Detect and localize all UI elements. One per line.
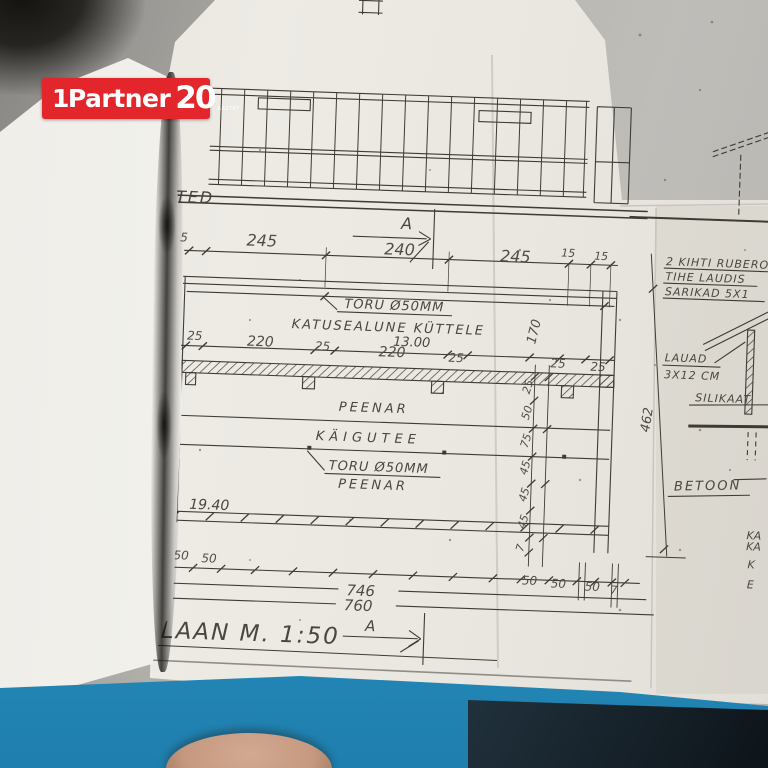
logo-brand-text: Partner — [68, 84, 170, 113]
dim: 25 — [187, 329, 203, 344]
peenar-label-1: PEENAR — [338, 400, 408, 417]
lauad-size: 3X12 CM — [664, 368, 721, 383]
shadow-blot — [158, 195, 176, 255]
kaigutee-label: KÄIGUTEE — [315, 428, 421, 448]
katusealune-label: KATUSEALUNE KÜTTELE — [291, 315, 485, 339]
dim: 50 — [201, 551, 217, 566]
chain-dim: 7 — [513, 543, 527, 553]
dim: 7 — [610, 583, 617, 596]
vert-dim: 170 — [524, 318, 545, 346]
dim: 50 — [550, 576, 566, 591]
dim: 50 — [584, 580, 600, 595]
logo-number: 20 — [175, 83, 214, 114]
lauad-label: LAUAD — [664, 351, 707, 365]
photo-of-blueprint: TED A 15 245 240 245 15 — [0, 0, 768, 768]
section-arrow-top: A — [352, 206, 435, 269]
chain-dim: 50 — [519, 404, 536, 421]
dim: 240 — [384, 239, 415, 259]
dim: 15 — [561, 247, 575, 260]
logo-suffix: AASTAT — [217, 106, 239, 112]
chain-dim: 45 — [517, 459, 534, 476]
logo-wordmark: 1Partner — [52, 84, 170, 113]
peenar-label-2: PEENAR — [338, 477, 408, 494]
shadow-blot — [156, 390, 172, 460]
dim: 25 — [550, 356, 566, 371]
edge-partial: K — [747, 558, 755, 571]
dim: 50 — [522, 573, 538, 588]
svg-text:A: A — [400, 214, 413, 233]
dim: 220 — [247, 334, 274, 351]
svg-text:A: A — [364, 617, 376, 635]
dim: 245 — [246, 231, 277, 251]
edge-partial: E — [747, 578, 754, 591]
dim: 25 — [448, 351, 464, 366]
chain-dim: 45 — [515, 513, 532, 530]
dim: 25 — [590, 360, 606, 375]
chain-dim: 75 — [518, 432, 535, 449]
total-dim: 760 — [344, 596, 373, 615]
dim: 15 — [594, 250, 608, 263]
partner-logo: 1Partner 20 AASTAT — [42, 78, 210, 119]
dim: 25 — [315, 339, 331, 354]
silikaat-label: SILIKAAT — [695, 391, 751, 406]
logo-one: 1 — [52, 84, 69, 113]
chain-dim: 45 — [516, 486, 533, 503]
betoon-label: BETOON — [674, 478, 742, 494]
edge-partial: KA — [746, 540, 761, 554]
dim: 220 — [378, 344, 405, 361]
top-fragment — [358, 0, 383, 15]
dim: 245 — [500, 246, 531, 266]
